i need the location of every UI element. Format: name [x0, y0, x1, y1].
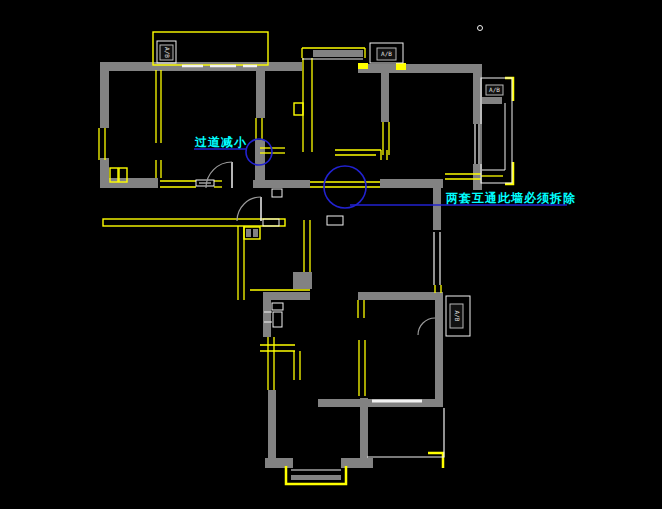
cad-floorplan-view[interactable]: A/BA/BA/BA/B 过道减小 两套互通此墙必须拆除: [0, 0, 662, 509]
balcony-outline: [103, 219, 285, 226]
wall-segment: [268, 390, 276, 466]
wall-segment: [246, 229, 251, 237]
annotation-corridor-reduced[interactable]: 过道减小: [195, 136, 247, 148]
label-glyph: A/B: [454, 311, 461, 322]
label-glyph: A/B: [381, 50, 392, 57]
wall-segment: [291, 475, 341, 480]
wall-segment: [100, 62, 109, 128]
wall-segment: [380, 179, 443, 188]
fixture-outline: [272, 189, 282, 197]
annotation-demolish-wall[interactable]: 两套互通此墙必须拆除: [446, 192, 576, 204]
balcony-outline: [294, 103, 303, 115]
window-mark: [396, 63, 406, 70]
wall-segment: [313, 50, 363, 57]
wall-segment: [253, 180, 310, 188]
wall-segment: [435, 300, 443, 405]
wall-segment: [293, 272, 312, 289]
balcony-edge: [367, 408, 444, 457]
wall-segment: [381, 72, 389, 122]
wall-segment: [265, 458, 293, 468]
wall-segment: [100, 178, 158, 188]
door-swing-arc: [206, 162, 232, 188]
wall-segment: [358, 292, 443, 300]
wall-segment: [433, 188, 441, 230]
label-glyph: A/B: [164, 47, 171, 58]
wall-segment: [360, 398, 368, 466]
fixture-outline: [272, 303, 283, 310]
fixture-outline: [263, 219, 279, 226]
wall-segment: [253, 229, 258, 237]
corner-bracket: [428, 453, 443, 468]
wall-segment: [358, 64, 481, 73]
label-glyph: A/B: [489, 86, 500, 93]
fixture-outline: [327, 216, 343, 225]
door-swing-arc: [418, 318, 435, 335]
fixture-outline: [273, 312, 282, 327]
wall-segment: [263, 295, 271, 337]
door-swing-arc: [237, 197, 261, 221]
wall-segment: [482, 97, 502, 104]
wall-segment: [255, 140, 265, 180]
reference-dot: [478, 26, 483, 31]
wall-segment: [256, 62, 265, 118]
window-mark: [358, 63, 368, 69]
floorplan-drawing[interactable]: A/BA/BA/BA/B: [0, 0, 662, 509]
